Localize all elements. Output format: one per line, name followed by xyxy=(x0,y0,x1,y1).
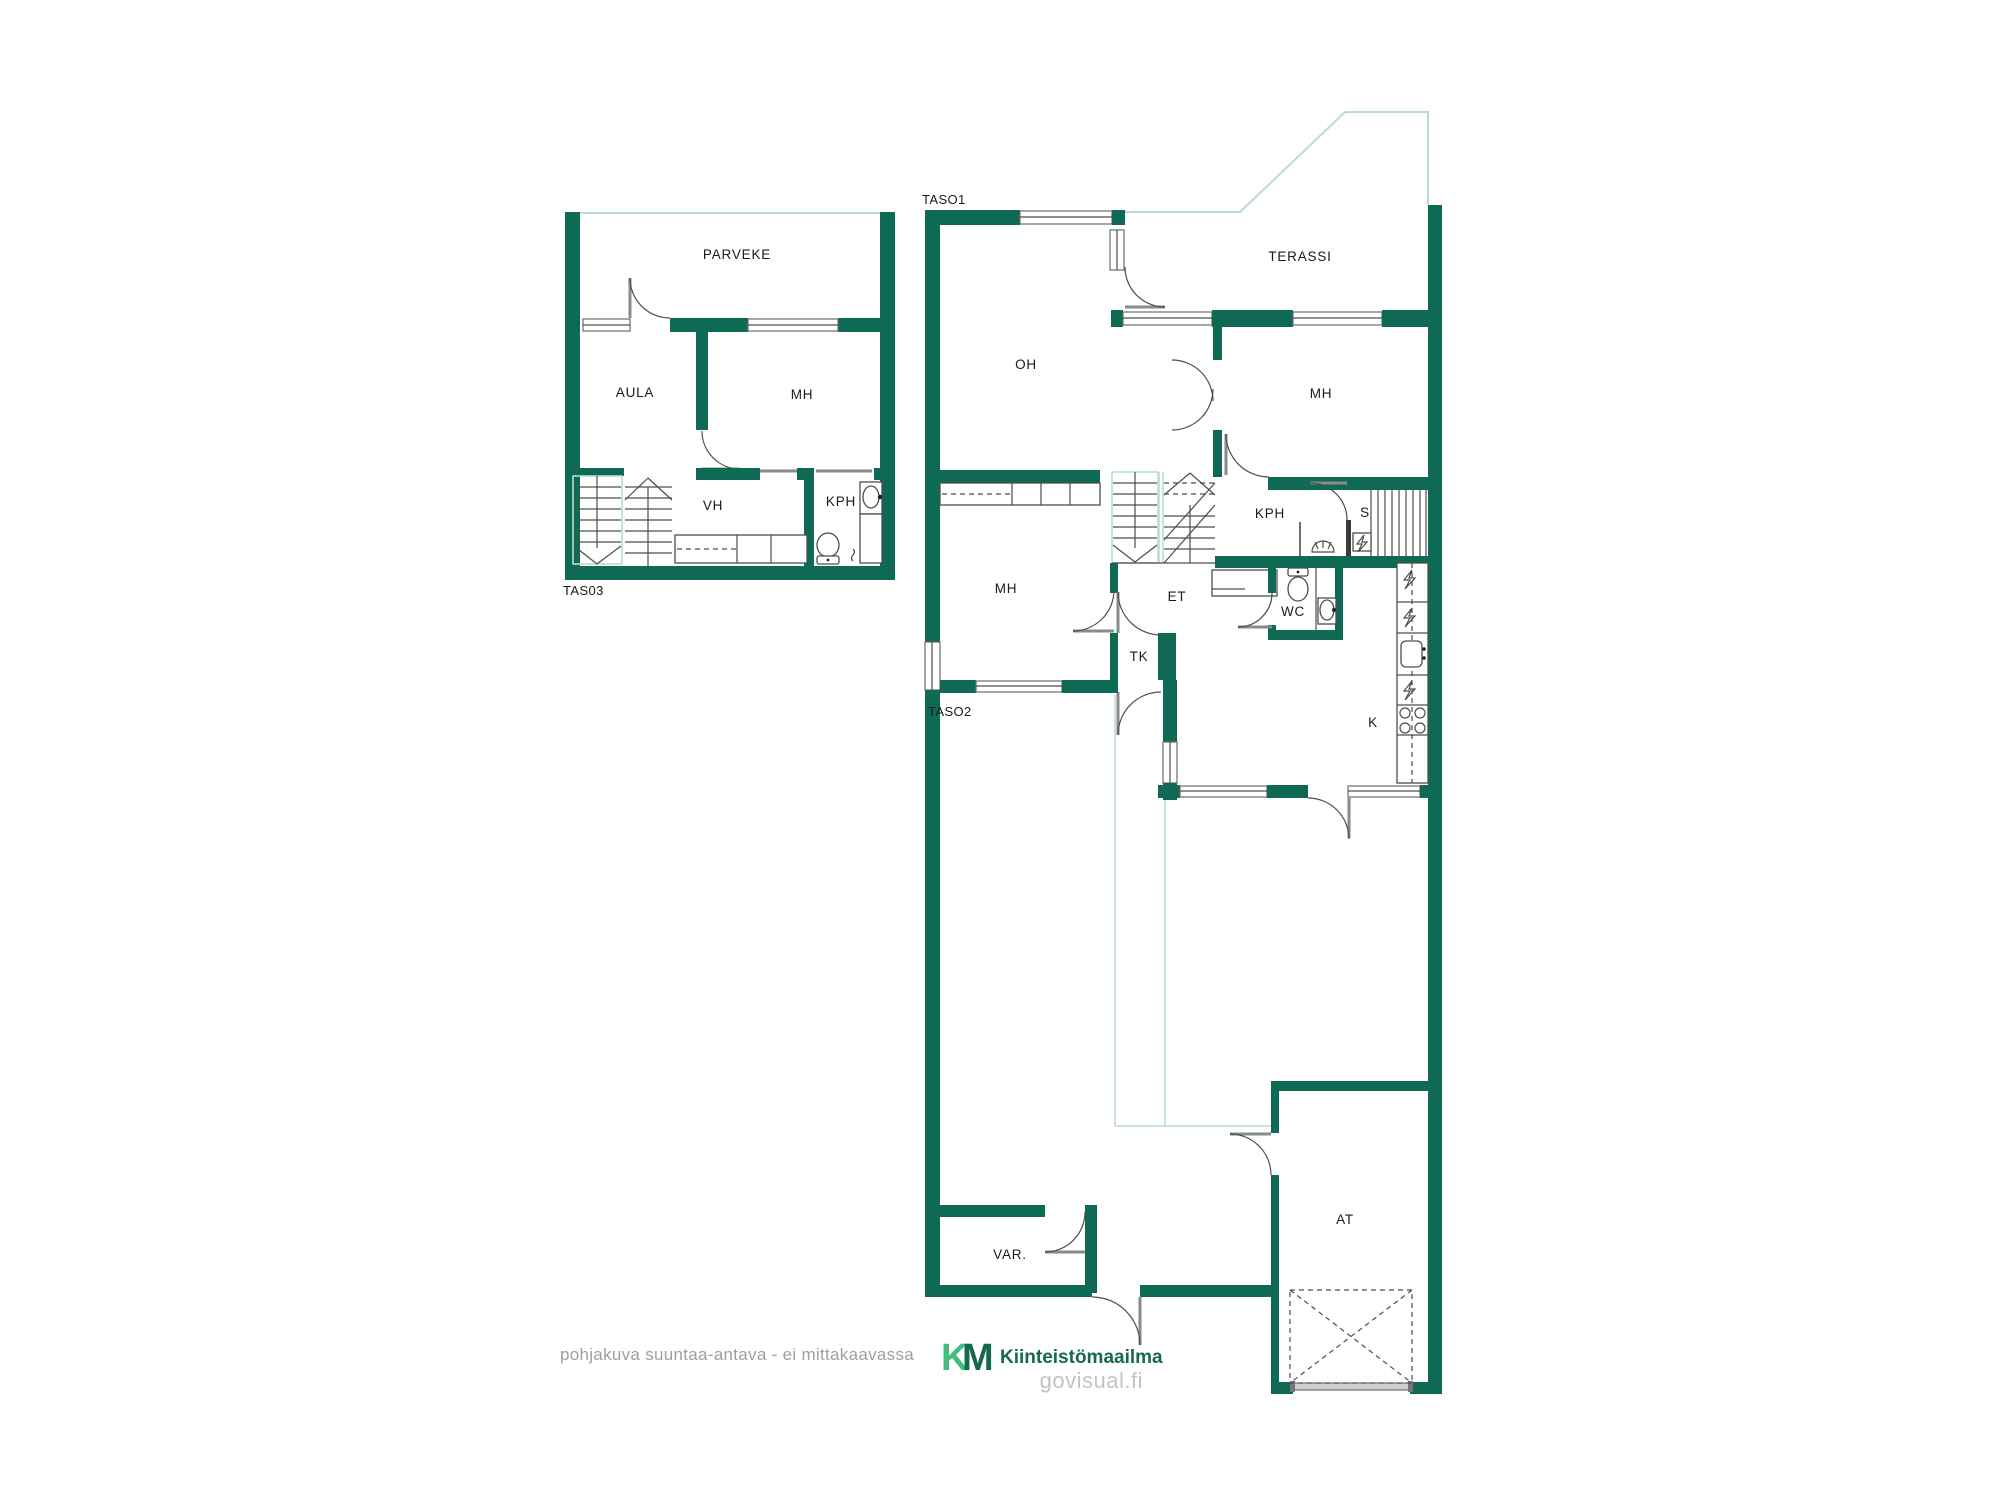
door-arc xyxy=(1172,389,1213,430)
floorplan-drawing: PARVEKE AULA MH VH KPH TAS03 xyxy=(0,0,2000,1500)
door-arc xyxy=(630,278,670,318)
door-arc xyxy=(1238,593,1272,627)
door-arc xyxy=(1073,590,1114,631)
footer: pohjakuva suuntaa-antava - ei mittakaava… xyxy=(560,1337,1163,1393)
floorplan-page: PARVEKE AULA MH VH KPH TAS03 xyxy=(0,0,2000,1500)
room-label-wc: WC xyxy=(1281,604,1305,619)
site-watermark: govisual.fi xyxy=(1040,1368,1143,1393)
room-label-et: ET xyxy=(1168,589,1187,604)
room-label-kph-taso1: KPH xyxy=(1255,506,1285,521)
room-label-k: K xyxy=(1368,715,1378,730)
room-label-terassi: TERASSI xyxy=(1268,249,1331,264)
door-arc xyxy=(702,431,740,469)
level-label-taso1: TASO1 xyxy=(922,192,966,207)
wardrobe xyxy=(675,535,807,563)
room-label-tk: TK xyxy=(1130,649,1149,664)
room-label-var: VAR. xyxy=(993,1247,1027,1262)
room-label-vh: VH xyxy=(703,498,723,513)
room-label-mh-taso1: MH xyxy=(1310,386,1333,401)
unit-main: TASO1 TERASSI OH MH KPH S TASO2 MH ET TK… xyxy=(922,112,1442,1394)
kitchen-sink-icon xyxy=(1401,641,1426,667)
shower-icon xyxy=(1312,541,1334,552)
room-label-aula: AULA xyxy=(616,385,654,400)
room-label-parveke: PARVEKE xyxy=(703,247,771,262)
brand-logo-m: M xyxy=(962,1337,994,1379)
room-label-s: S xyxy=(1360,505,1370,520)
door-arc xyxy=(1045,1212,1085,1252)
closet xyxy=(1212,570,1277,596)
door-arc xyxy=(1092,1297,1140,1345)
level-label-taso2: TASO2 xyxy=(928,704,972,719)
overhang-outline xyxy=(1115,695,1271,1126)
glass-partition xyxy=(1346,520,1351,558)
unit-tas03: PARVEKE AULA MH VH KPH TAS03 xyxy=(563,212,895,598)
door-arc xyxy=(1226,434,1269,477)
at-room xyxy=(1230,1081,1442,1394)
door-arc xyxy=(1308,798,1349,839)
staircase-tas03 xyxy=(573,476,672,566)
door-arc xyxy=(1118,592,1161,635)
staircase-main xyxy=(1112,472,1215,563)
room-label-mh-taso2: MH xyxy=(995,581,1018,596)
toilet-icon xyxy=(1288,568,1308,601)
room-label-kph: KPH xyxy=(826,494,856,509)
room-label-oh: OH xyxy=(1015,357,1037,372)
door-arc xyxy=(1172,360,1213,401)
door-arc xyxy=(1230,1134,1271,1175)
sauna-bench-icon xyxy=(1371,490,1426,556)
terrace-outline xyxy=(1125,112,1428,212)
floor-drain-icon xyxy=(852,549,855,561)
room-label-at: AT xyxy=(1336,1212,1354,1227)
toilet-icon xyxy=(817,533,839,564)
level-label-tas03: TAS03 xyxy=(563,583,604,598)
disclaimer-text: pohjakuva suuntaa-antava - ei mittakaava… xyxy=(560,1345,914,1364)
kitchen-counter xyxy=(1397,563,1428,783)
sauna-stove-icon xyxy=(1353,533,1371,552)
wardrobe xyxy=(940,483,1100,505)
room-label-mh: MH xyxy=(791,387,814,402)
parking-spot-marking xyxy=(1290,1290,1412,1383)
sink-icon xyxy=(860,482,882,563)
sink-icon xyxy=(1318,598,1336,624)
door-arc xyxy=(1125,267,1165,307)
door-arc xyxy=(1118,692,1161,735)
brand-name: Kiinteistömaailma xyxy=(1000,1347,1163,1368)
